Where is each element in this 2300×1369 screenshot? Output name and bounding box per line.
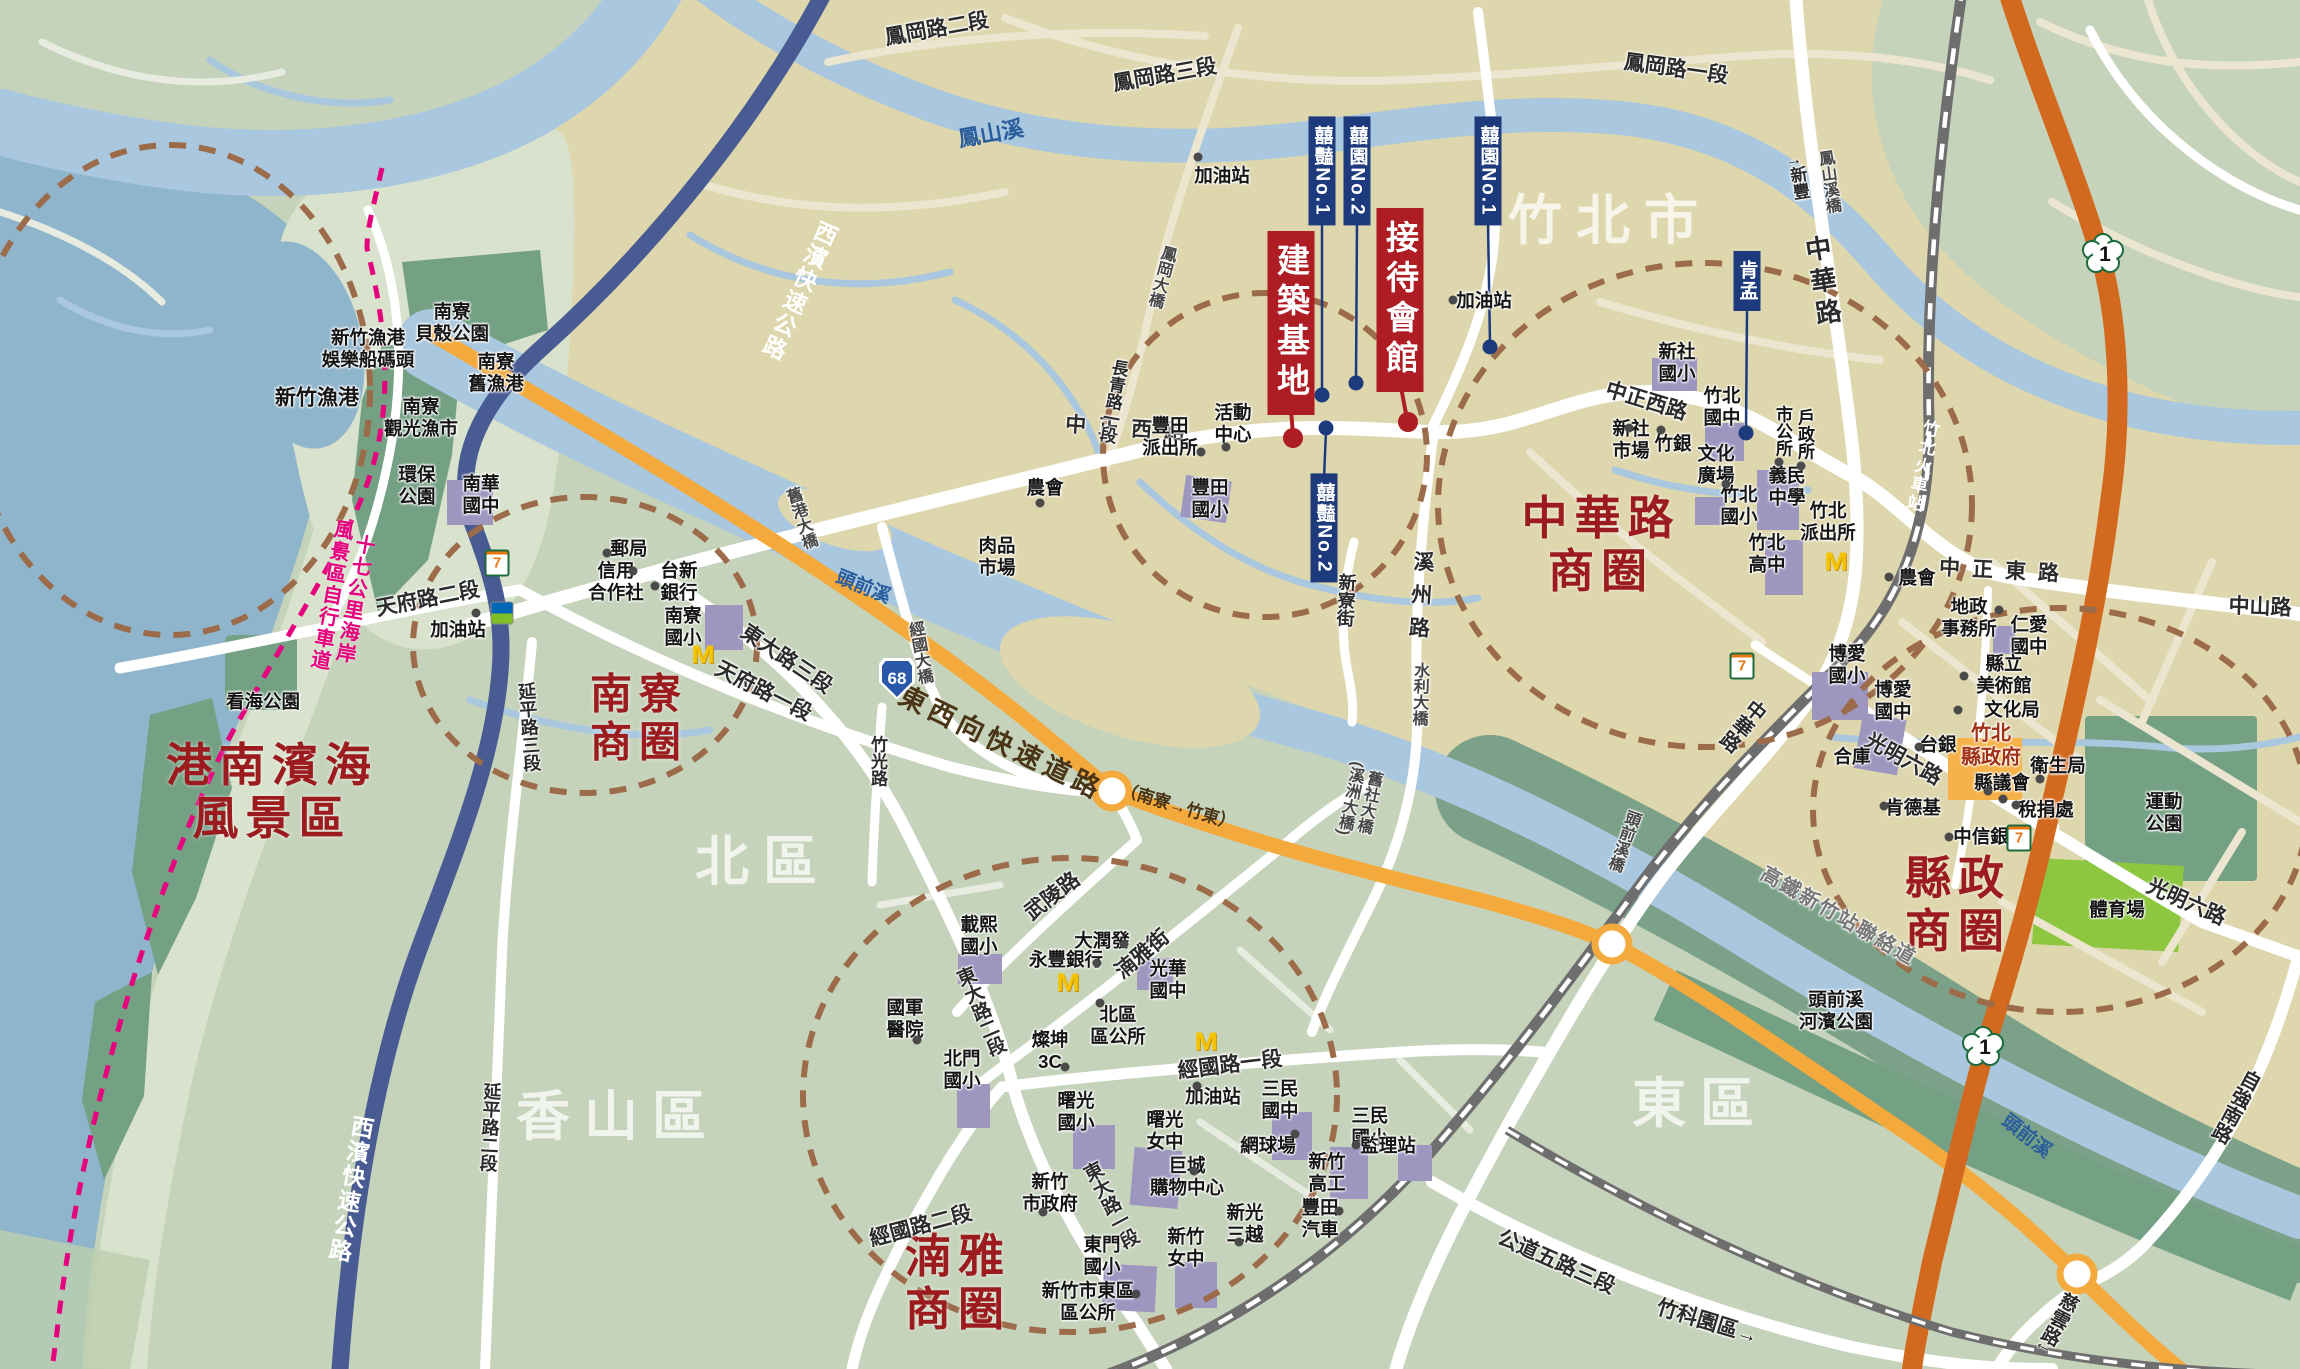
mcdonalds-icon: M [1194,1029,1217,1054]
poi-hsinchu-fishing-port: 新竹漁港 [275,387,359,412]
biz-nanya: 湳雅商圈 [905,1230,1011,1336]
poi-dot [1775,458,1784,467]
poi-huanbao-park: 環保公園 [398,464,435,508]
poi-post-office: 郵局 [610,538,647,560]
road-yanping-2: 延平路二段 [476,1082,502,1173]
map-labels-layer: 竹北市北區香山區東區港南濱海風景區南寮商圈中華路商圈縣政商圈湳雅商圈建築基地接待… [0,0,2300,1369]
poi-dot [603,549,612,558]
bridge-jiugang: 舊港大橋 [780,486,818,553]
poi-nanliao-fish-market: 南寮觀光漁市 [384,396,458,440]
poi-dot [913,1036,922,1045]
poi-dot [1235,1238,1244,1247]
river-touqian-west: 頭前溪 [832,567,893,609]
road-dongda-2: 東大路二段 [950,964,1008,1060]
district-east: 東區 [1632,1073,1768,1137]
poi-dot [1960,672,1969,681]
callout-xiyuan-no1: 囍園No.1 [1475,116,1502,225]
poi-dot [2036,775,2045,784]
road-guangming-6-e: 光明六路 [2143,875,2230,932]
road-fenggang-1: 鳳岡路一段 [1622,50,1729,89]
road-zhuguang: 竹光路 [867,736,887,787]
poi-kanhai-park: 看海公園 [226,691,300,713]
poi-dot [1093,959,1102,968]
poi-dot [1722,480,1731,489]
highlight-site-dot [1283,428,1303,448]
poi-dot [1999,795,2008,804]
poi-county-art-museum: 縣立美術館 [1976,653,2032,697]
poi-zhuyin-bank: 竹銀 [1654,433,1691,455]
biz-zhonghua-rd: 中華路商圈 [1522,492,1681,598]
callout-construction-site: 建築基地 [1268,231,1315,415]
poi-dot [1885,573,1894,582]
poi-dot [1954,706,1963,715]
poi-dot [1995,606,2004,615]
callout-xiyan-no1: 囍豔No.1 [1309,116,1336,225]
project-site-dot [1739,426,1754,441]
poi-north-dist-office: 北區區公所 [1090,1004,1146,1048]
bridge-fenggang: 鳳岡大橋 [1143,243,1178,310]
seven-eleven-icon: 7 [485,550,510,577]
poi-gas-station-nanliao: 加油站 [430,619,486,641]
callout-reception-hall: 接待會館 [1377,208,1424,392]
poi-military-hospital: 國軍醫院 [886,997,923,1041]
road-68-expwy: 東西向快速道路 [893,681,1108,808]
poi-dot [1190,1167,1199,1176]
highlight-site-dot [1398,412,1418,432]
poi-nanhua-jhs: 南華國中 [462,473,499,517]
poi-dot [1449,296,1458,305]
road-ciyun: 慈雲路↓ [2030,1287,2081,1356]
road-tianfu-2: 天府路二段 [374,578,482,622]
poi-stadium: 體育場 [2089,899,2145,921]
poi-zhubei-jhs: 竹北國中 [1703,385,1740,429]
road-gongdao-5: 公道五路三段 [1493,1226,1618,1300]
poi-dot [1984,787,1993,796]
poi-dot [1291,1130,1300,1139]
biz-nanliao: 南寮商圈 [590,671,688,768]
biz-xianzheng: 縣政商圈 [1905,852,2011,958]
poi-activity-center: 活動中心 [1214,402,1251,446]
poi-zhubei-police: 竹北派出所 [1800,500,1856,544]
poi-guanghua-jhs: 光華國中 [1149,958,1186,1002]
poi-east-dist-office: 新竹市東區區公所 [1042,1280,1135,1324]
poi-dot [1797,462,1806,471]
road-zhongshan: 中山路 [2228,595,2292,622]
callout-kenmeng: 肯孟 [1734,251,1761,311]
poi-bank-of-taiwan: 台銀 [1919,734,1956,756]
road-xizhou: 溪州路 [1403,550,1435,650]
callout-xiyuan-no2: 囍園No.2 [1344,116,1371,225]
poi-dot [1335,1207,1344,1216]
poi-dot [1945,833,1954,842]
poi-dot [1096,999,1105,1008]
poi-toyota: 豐田汽車 [1301,1197,1338,1241]
poi-beimen-es: 北門國小 [943,1048,980,1092]
poi-renai-jhs: 仁愛國中 [2010,614,2047,658]
poi-hsinchu-city-hall: 新竹市政府 [1022,1171,1078,1215]
poi-dot [1915,743,1924,752]
poi-nanliao-old-port: 南寮舊漁港 [468,351,524,395]
poi-fengtian-es: 豐田國小 [1191,477,1228,521]
rail-zhubei-station: 竹北火車站 [1901,417,1940,514]
poi-land-office: 地政事務所 [1941,596,1997,640]
poi-tax-office: 稅捐處 [2018,799,2074,821]
road-zhonghua-n: 中華路 [1799,233,1844,333]
road-ziqiang-s: 自強南路 [2205,1064,2263,1146]
river-fengshan: 鳳山溪 [956,115,1026,152]
road-wuling: 武陵路 [1021,868,1086,926]
familymart-icon [491,602,514,625]
poi-fengtian-police: 豐田派出所 [1142,415,1198,459]
poi-dot [629,567,638,576]
poi-boai-es: 博愛國小 [1828,643,1865,687]
district-zhubei-city: 竹北市 [1508,190,1712,254]
bridge-shuili: 水利大橋 [1407,662,1428,727]
poi-household-office: 戶政所 [1794,409,1814,460]
poi-dot [1193,1082,1202,1091]
map-canvas: 竹北市北區香山區東區港南濱海風景區南寮商圈中華路商圈縣政商圈湳雅商圈建築基地接待… [0,0,2300,1369]
project-site-dot [1483,340,1498,355]
poi-xinshe-es: 新社國小 [1658,341,1695,385]
seven-eleven-icon: 7 [1730,653,1755,680]
poi-dot [1880,802,1889,811]
poi-dot [472,609,481,618]
poi-hsinchu-ivs: 新竹高工 [1308,1151,1345,1195]
provincial-route-1-shield: 1 [2085,235,2125,275]
project-site-dot [1319,421,1334,436]
poi-culture-bureau: 文化局 [1984,699,2040,721]
project-site-dot [1349,376,1364,391]
poi-city-office: 市公所 [1772,406,1792,457]
poi-ctbc-bank: 中信銀 [1953,826,2009,848]
road-fenggang-3: 鳳岡路三段 [1111,55,1219,98]
road-hsr-link: 高鐵新竹站聯絡道 [1756,863,1920,971]
road-to-xinfeng: ↑新豐 [1784,156,1810,201]
river-touqian-east: 頭前溪 [1997,1111,2056,1164]
bridge-fengshanxi: 鳳山溪橋 [1813,149,1841,215]
poi-boai-jhs: 博愛國中 [1874,679,1911,723]
poi-meat-market: 肉品市場 [978,535,1015,579]
poi-shuguang-ghs: 曙光女中 [1146,1109,1183,1153]
road-yanping-3: 延平路三段 [514,681,541,772]
poi-dot [651,582,660,591]
poi-sports-park: 運動公園 [2145,791,2182,835]
poi-dot [1352,1141,1361,1150]
poi-skm-dept-store: 新光三越 [1226,1202,1263,1246]
poi-gas-station-fenggang: 加油站 [1194,165,1250,187]
district-north: 北區 [695,831,831,895]
poi-taishin-bank: 台新銀行 [660,560,697,604]
mcdonalds-icon: M [1824,549,1847,574]
callout-xiyan-no2: 囍豔No.2 [1311,473,1338,582]
poi-big-city-mall: 巨城購物中心 [1150,1155,1224,1199]
bike-path-17km: 十七公里海岸風景區自行車道 [304,517,377,677]
road-zhongzheng-e: 中正東路 [1938,556,2071,588]
road-fenggang-2: 鳳岡路二段 [883,9,991,52]
road-zhonghua-s: 中華路 [1713,693,1769,754]
poi-gas-station-zhongzheng: 加油站 [1456,290,1512,312]
seven-eleven-icon: 7 [2007,825,2032,852]
bridge-touqianxi: 頭前溪橋 [1602,807,1642,874]
road-hsinchu-science-park: 竹科園區→ [1653,1296,1761,1350]
poi-dot [1625,424,1634,433]
poi-hsinchu-ghs: 新竹女中 [1167,1226,1204,1270]
poi-kfc: 肯德基 [1885,797,1941,819]
poi-dot [1120,940,1129,949]
poi-touqian-riverside-park: 頭前溪河濱公園 [1799,989,1873,1033]
road-xinliao-st: 新寮街 [1333,572,1357,627]
poi-taiwan-coop-bank: 合庫 [1833,746,1870,768]
poi-dot [1194,153,1203,162]
poi-zaixi-es: 載熙國小 [960,914,997,958]
project-site-dot [1315,388,1330,403]
poi-dot [1061,1063,1070,1072]
road-xibin-expwy-n: 西濱快速公路 [755,216,841,364]
biz-gangnan-scenic: 港南濱海風景區 [166,739,378,845]
poi-dongmen-es: 東門國小 [1083,1234,1120,1278]
poi-nanliao-shell-park: 南寮貝殼公園 [415,301,489,345]
poi-farmers-assoc-fengtian: 農會 [1026,477,1063,499]
road-xibin-expwy-s: 西濱快速公路 [323,1113,376,1265]
poi-tennis-court: 網球場 [1240,1135,1296,1157]
poi-dot [1222,443,1231,452]
poi-farmers-assoc-zhubei: 農會 [1898,567,1935,589]
road-68-direction: （南寮→竹東） [1118,780,1238,834]
provincial-route-1-shield: 1 [1965,1028,2005,1068]
poi-dot [1657,426,1666,435]
bridge-jiushe: 舊社大橋(溪洲大橋) [1332,760,1384,841]
poi-dot [2012,801,2021,810]
poi-vehicle-office: 監理站 [1360,1135,1416,1157]
mcdonalds-icon: M [1056,970,1079,995]
poi-zhubei-shs: 竹北高中 [1748,532,1785,576]
mcdonalds-icon: M [691,642,714,667]
poi-sanmin-jhs: 三民國中 [1261,1078,1298,1122]
poi-fishing-port-marina: 新竹漁港娛樂船碼頭 [322,327,415,371]
poi-dot [1132,1290,1141,1299]
district-xiangshan: 香山區 [516,1086,720,1150]
poi-dot [1197,448,1206,457]
poi-county-government: 竹北縣政府 [1961,722,2021,769]
poi-dot [1036,499,1045,508]
poi-shuguang-es: 曙光國小 [1057,1090,1094,1134]
poi-zhubei-es: 竹北國小 [1720,484,1757,528]
poi-dot [1039,1208,1048,1217]
